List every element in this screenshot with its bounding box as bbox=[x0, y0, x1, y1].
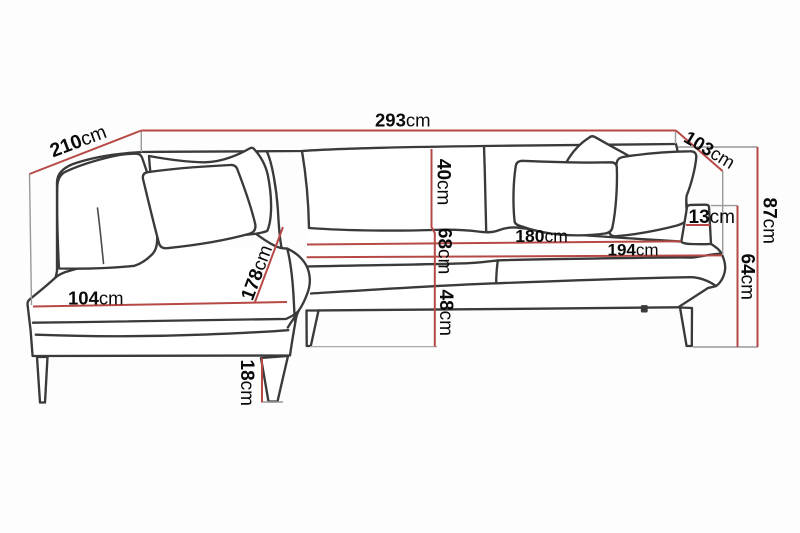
svg-text:194cm: 194cm bbox=[608, 240, 659, 259]
svg-text:48cm: 48cm bbox=[435, 290, 456, 336]
svg-text:40cm: 40cm bbox=[433, 159, 454, 205]
svg-text:180cm: 180cm bbox=[515, 226, 568, 246]
svg-text:18cm: 18cm bbox=[236, 360, 257, 406]
svg-text:68cm: 68cm bbox=[434, 228, 455, 274]
svg-text:87cm: 87cm bbox=[759, 198, 780, 244]
svg-text:104cm: 104cm bbox=[68, 288, 124, 309]
svg-text:13cm: 13cm bbox=[689, 207, 735, 228]
svg-text:293cm: 293cm bbox=[375, 110, 431, 131]
svg-text:64cm: 64cm bbox=[737, 254, 758, 300]
